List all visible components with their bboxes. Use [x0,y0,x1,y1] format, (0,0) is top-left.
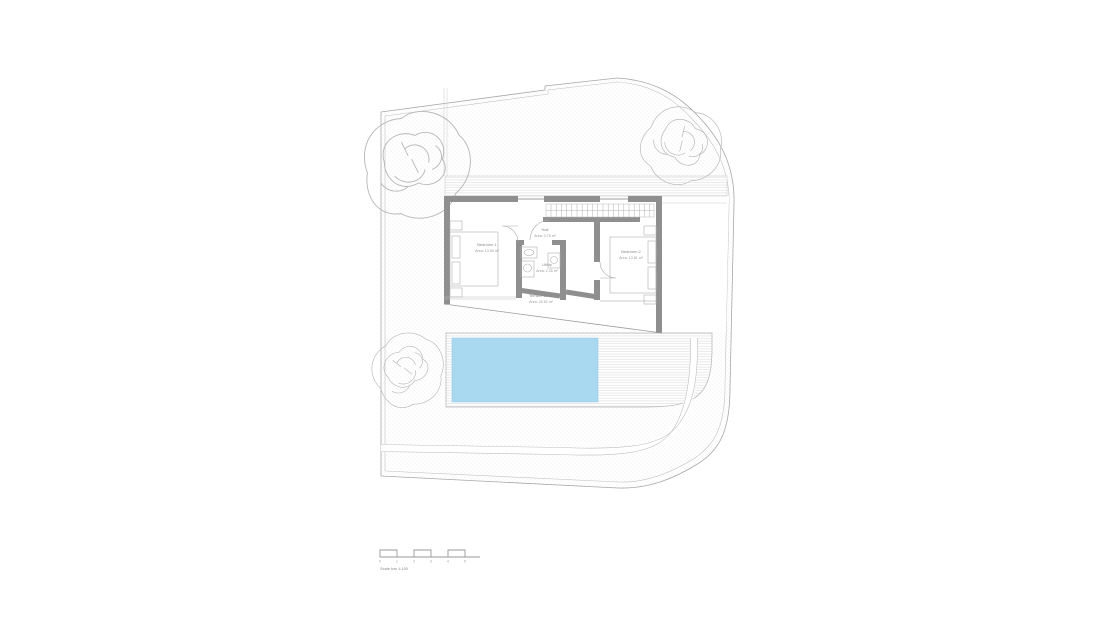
scale-bar: 0 1 2 3 4 5 Scale bar 1:100 [379,550,480,571]
bedroom2-area: Area: 13.81 m² [619,256,644,260]
hall-area: Area: 3.75 m² [534,234,557,238]
bedroom1-area: Area: 13.55 m² [475,249,500,253]
scale-tick-3: 3 [430,560,432,564]
scale-bar-label: Scale bar 1:100 [380,566,409,571]
scale-tick-5: 5 [464,560,466,564]
scale-tick-4: 4 [447,560,449,564]
floor-plan-drawing: Bedroom 1 Area: 13.55 m² Hall Area: 3.75… [0,0,1110,626]
bedroom1-label: Bedroom 1 [477,242,497,247]
top-deck-band [445,176,727,196]
utility-area: Area: 2.35 m² [536,269,559,273]
bedroom2-label: Bedroom 2 [621,249,641,254]
pool-deck [446,333,712,407]
floor-plan-page: Bedroom 1 Area: 13.55 m² Hall Area: 3.75… [0,0,1110,626]
side-yard-white-strip [662,196,729,332]
terrace-area: Area: 20.62 m² [529,300,554,304]
hall-label: Hall [542,227,549,232]
scale-tick-2: 2 [413,560,415,564]
terrace-label: Terrace 1st fl. [529,293,553,298]
swimming-pool [452,338,598,402]
scale-tick-0: 0 [379,560,381,564]
scale-tick-1: 1 [396,560,398,564]
utility-label: Utility [542,262,552,267]
scale-bar-steps [380,550,480,557]
